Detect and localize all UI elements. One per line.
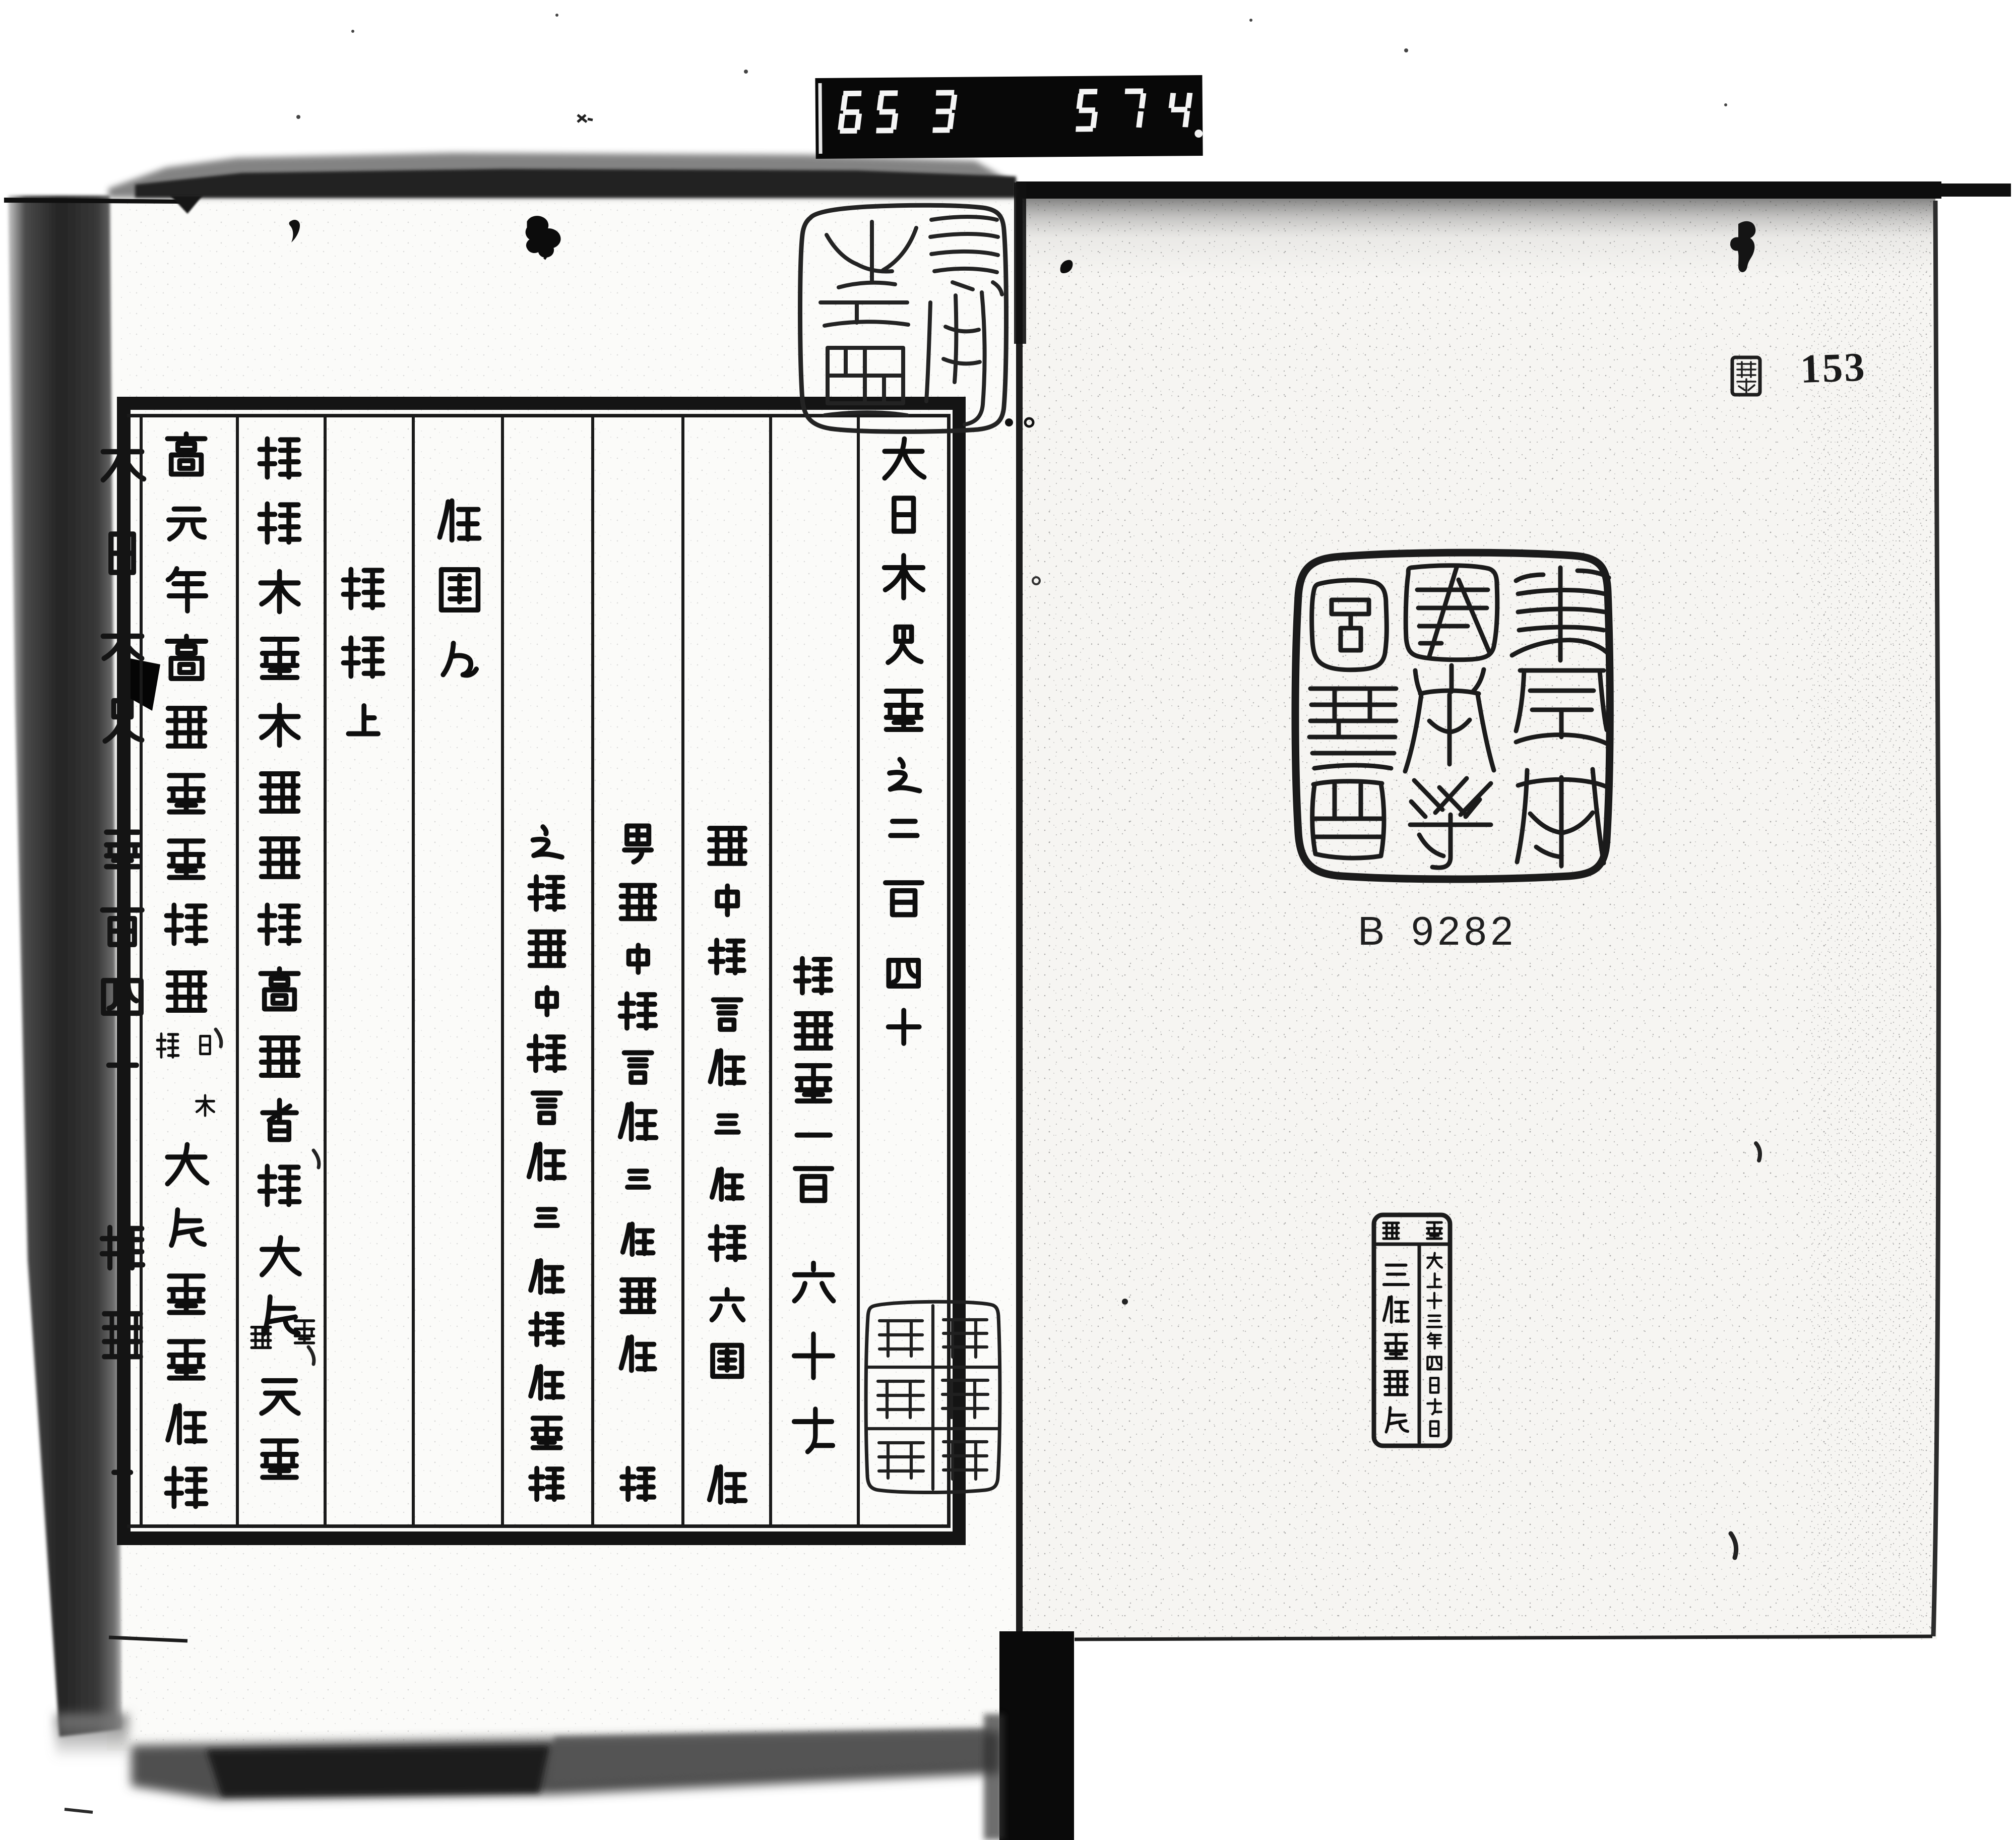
svg-text:B: B <box>1358 908 1384 953</box>
svg-text:153: 153 <box>1799 344 1867 391</box>
svg-text:9282: 9282 <box>1411 908 1517 953</box>
